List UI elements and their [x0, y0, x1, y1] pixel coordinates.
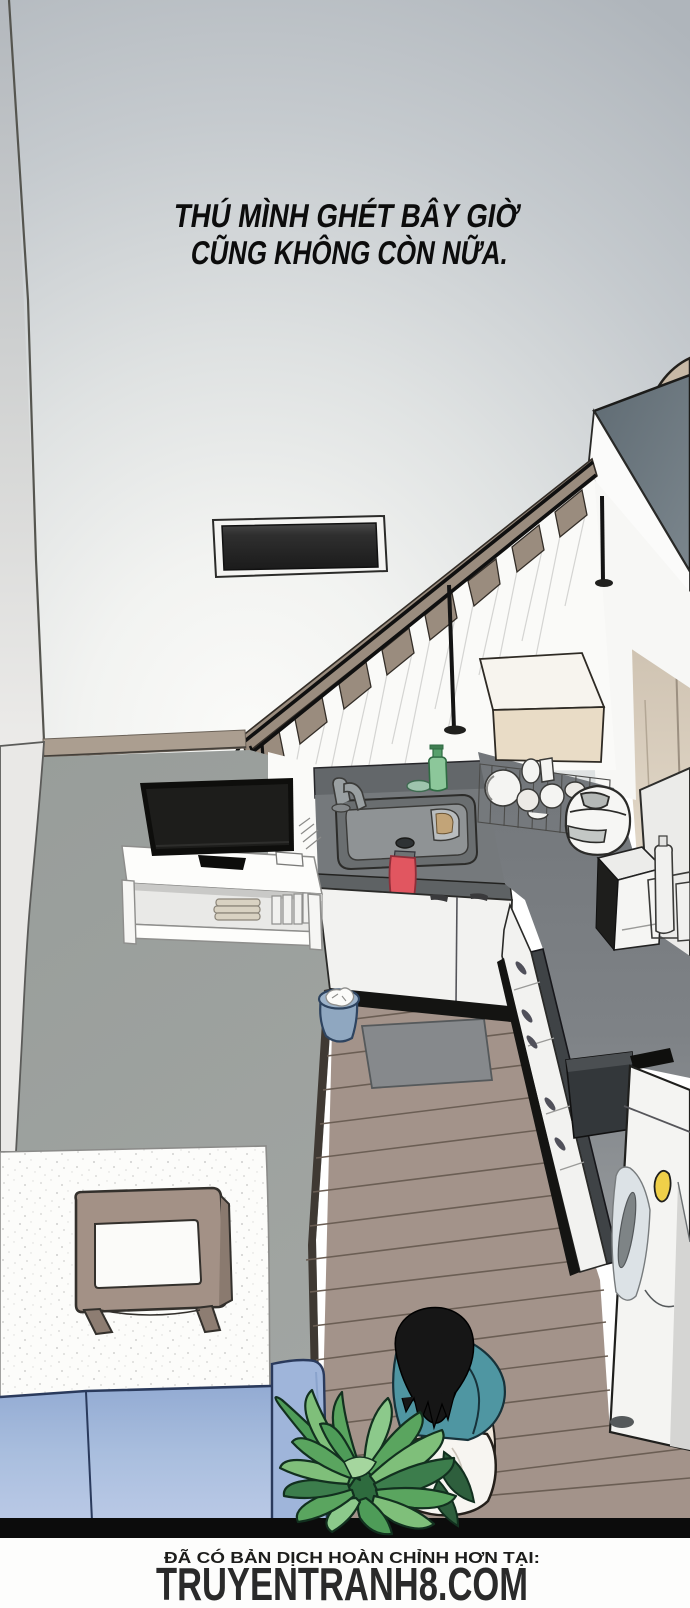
- svg-text:THÚ MÌNH GHÉT BÂY GIỜ: THÚ MÌNH GHÉT BÂY GIỜ: [171, 197, 523, 235]
- svg-text:TRUYENTRANH8.COM: TRUYENTRANH8.COM: [156, 1558, 528, 1608]
- svg-text:CŨNG KHÔNG CÒN NỮA.: CŨNG KHÔNG CÒN NỮA.: [188, 233, 511, 272]
